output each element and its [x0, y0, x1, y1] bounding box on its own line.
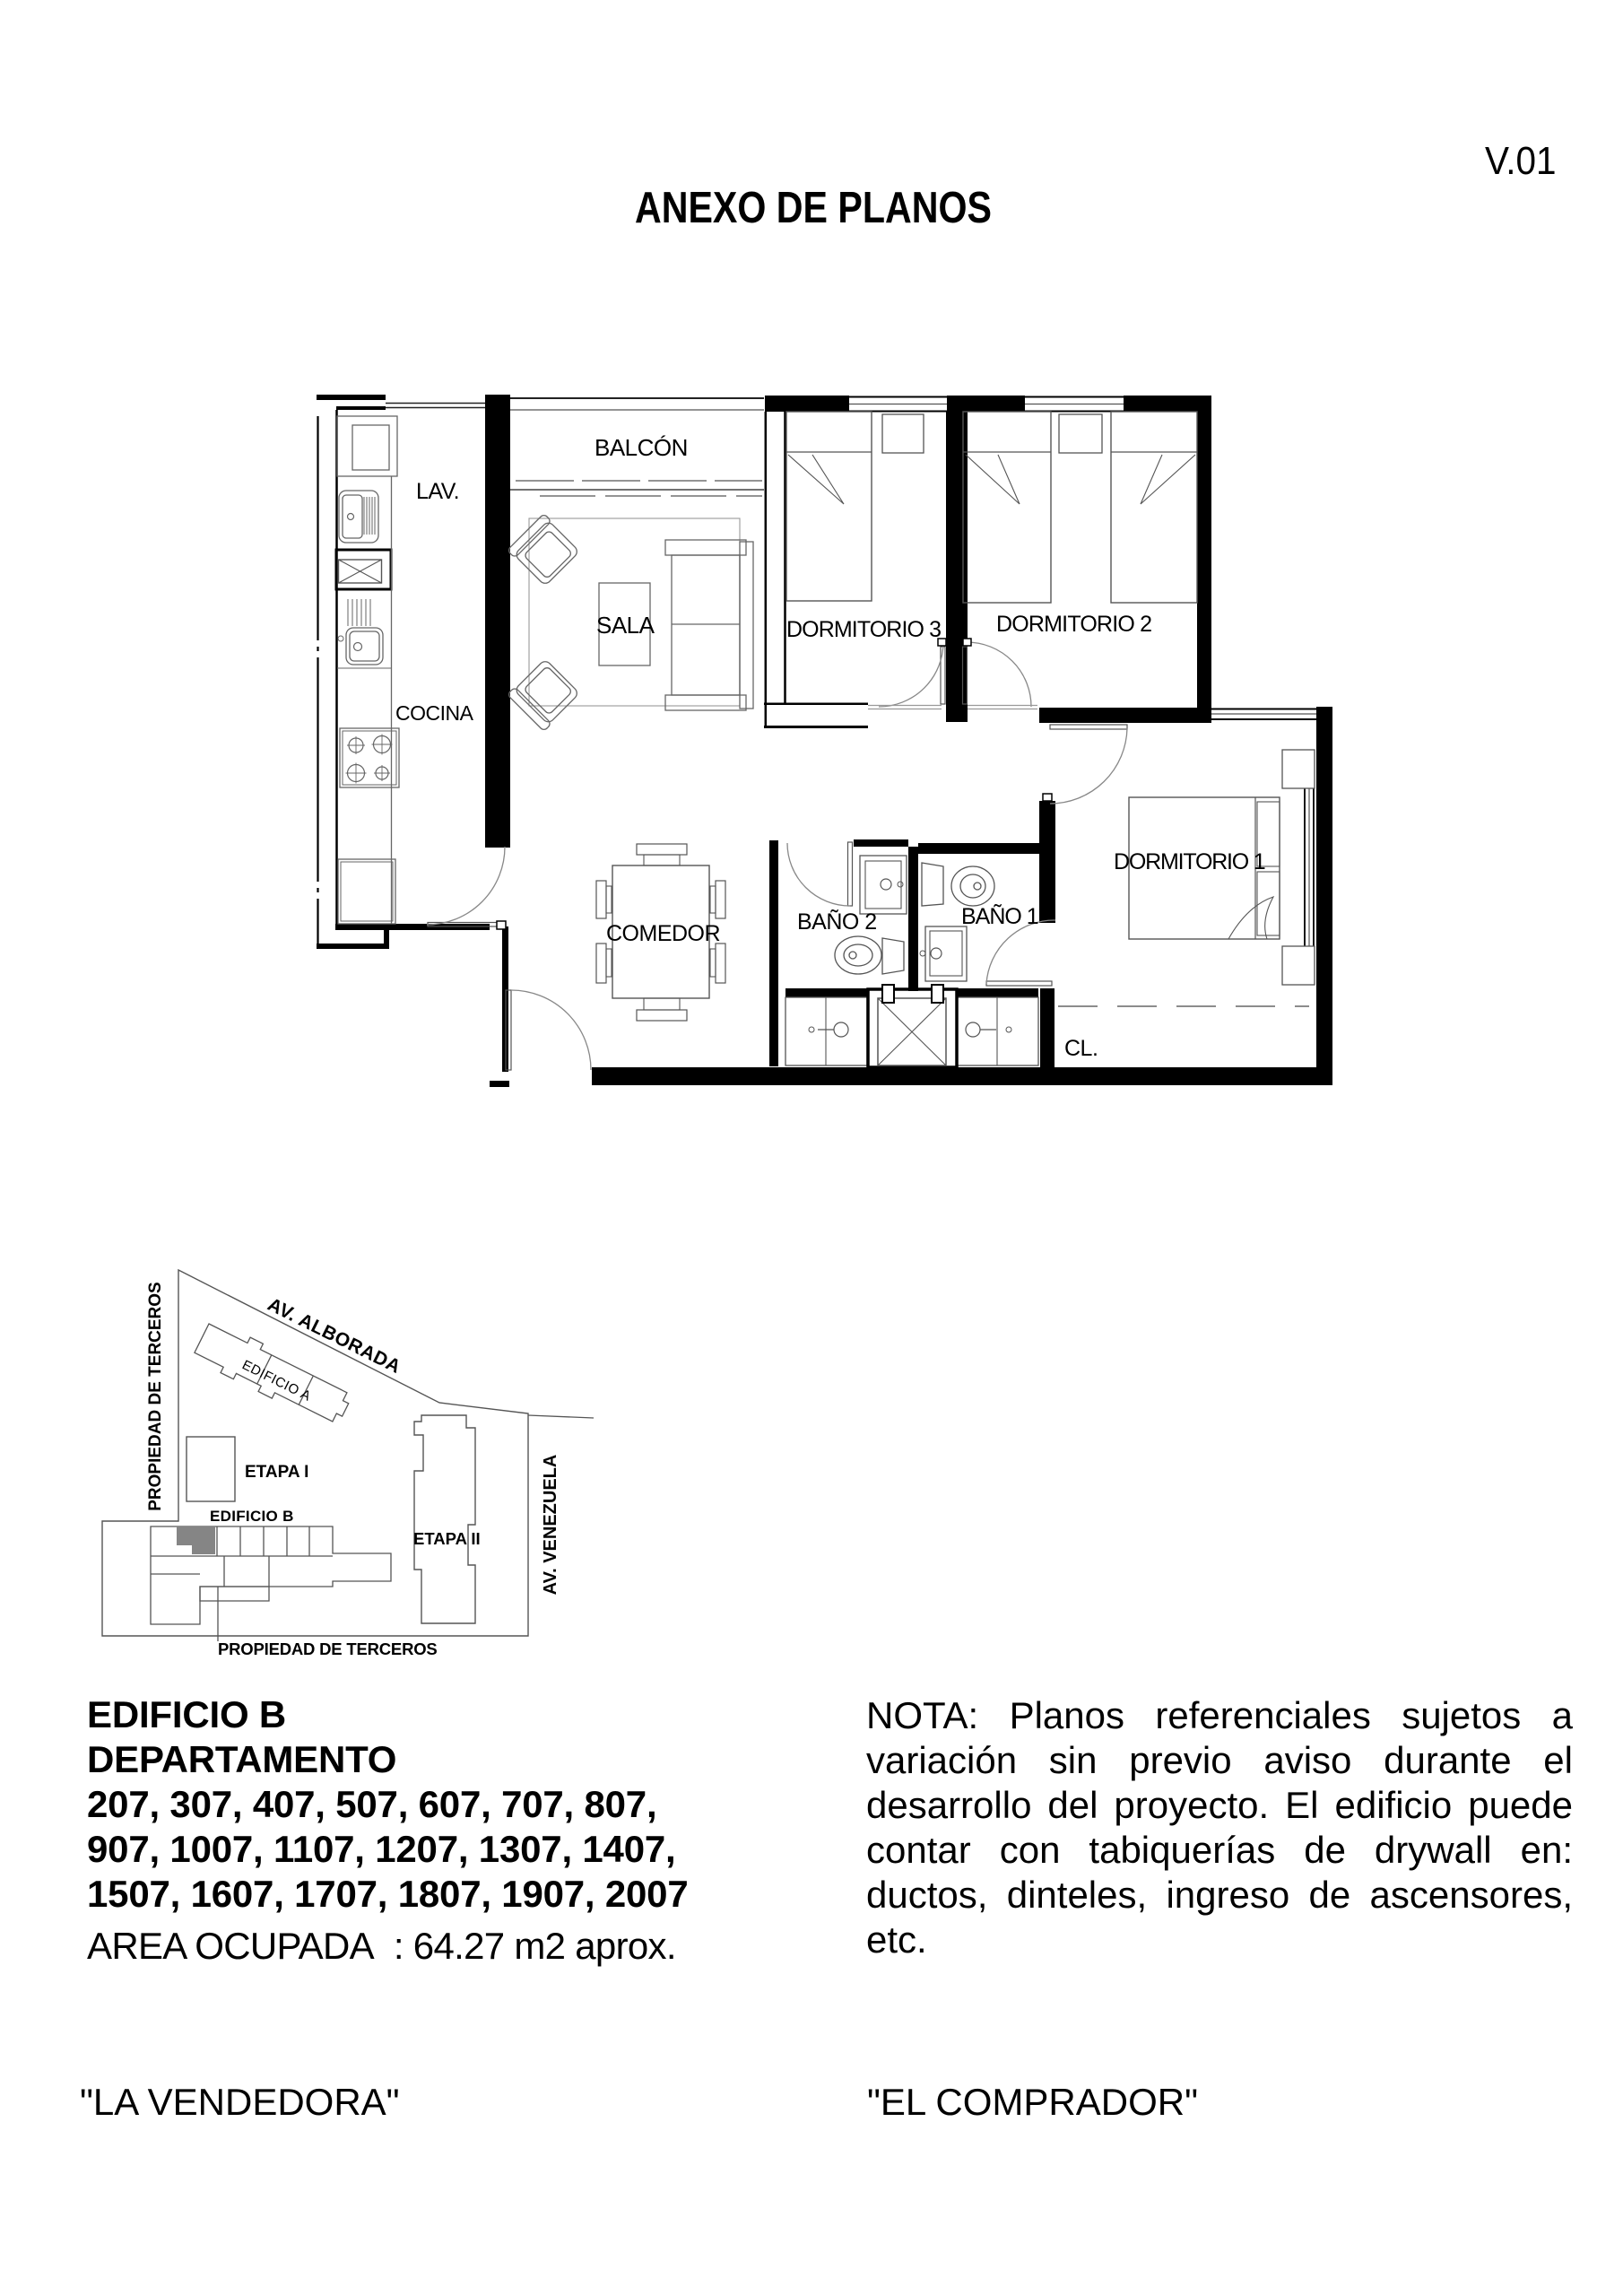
svg-text:COMEDOR: COMEDOR — [606, 921, 720, 946]
svg-text:LAV.: LAV. — [416, 479, 459, 504]
svg-text:DORMITORIO 1: DORMITORIO 1 — [1114, 849, 1265, 874]
svg-text:AV. ALBORADA: AV. ALBORADA — [265, 1294, 404, 1378]
svg-text:CL.: CL. — [1064, 1036, 1098, 1061]
svg-text:AV. VENEZUELA: AV. VENEZUELA — [541, 1455, 560, 1596]
svg-text:PROPIEDAD DE TERCEROS: PROPIEDAD DE TERCEROS — [146, 1282, 165, 1510]
svg-text:ETAPA I: ETAPA I — [245, 1463, 308, 1482]
svg-text:EDIFICIO B: EDIFICIO B — [210, 1508, 294, 1525]
svg-text:SALA: SALA — [596, 612, 655, 639]
svg-text:COCINA: COCINA — [395, 701, 474, 725]
svg-text:BAÑO 1: BAÑO 1 — [961, 903, 1038, 929]
svg-text:DORMITORIO 2: DORMITORIO 2 — [996, 612, 1151, 637]
svg-text:BALCÓN: BALCÓN — [595, 434, 688, 461]
svg-text:DORMITORIO 3: DORMITORIO 3 — [786, 617, 941, 642]
svg-text:BAÑO 2: BAÑO 2 — [797, 909, 877, 935]
svg-text:PROPIEDAD DE TERCEROS: PROPIEDAD DE TERCEROS — [218, 1639, 438, 1658]
svg-text:ETAPA II: ETAPA II — [413, 1529, 481, 1548]
